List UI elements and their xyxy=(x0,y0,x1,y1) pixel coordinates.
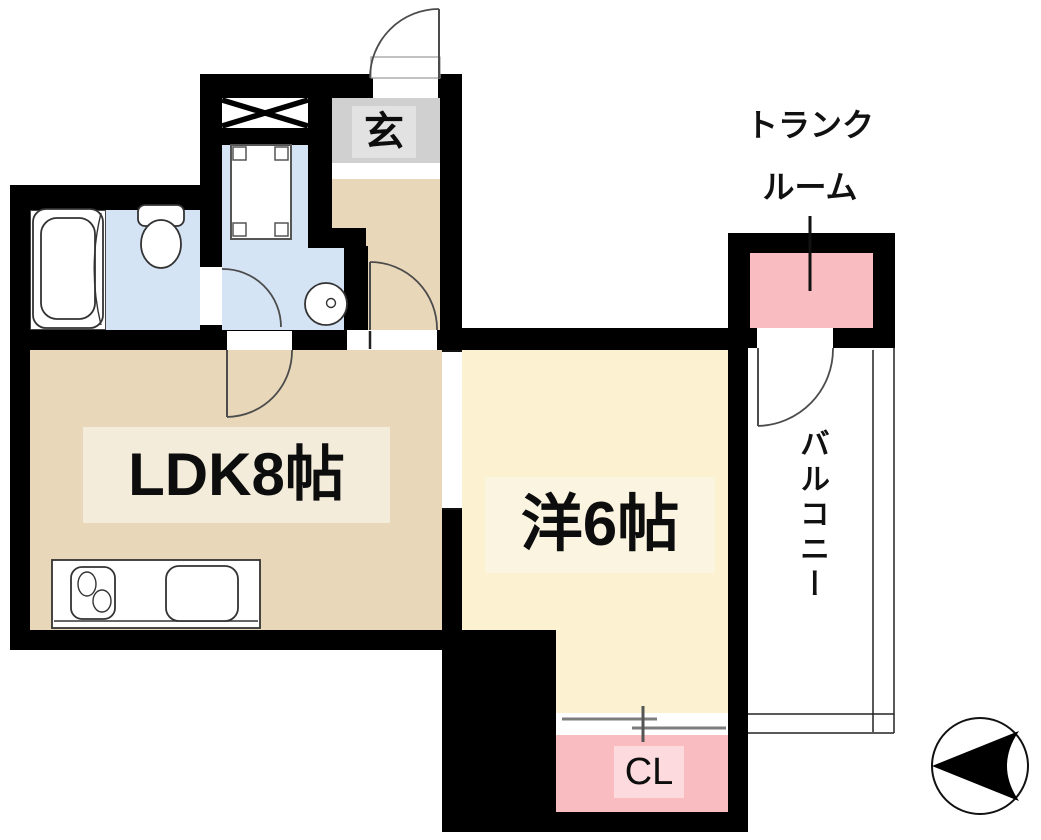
floor-plan: LDK8帖 洋6帖 玄 CL トランク ルーム バルコニー xyxy=(0,0,1041,840)
western-room-label: 洋6帖 xyxy=(485,477,715,573)
bathtub-icon xyxy=(33,209,103,328)
wash-basin-icon xyxy=(305,283,347,325)
pipe-shaft-x-icon xyxy=(222,98,308,128)
toilet-icon xyxy=(138,205,184,268)
sliding-closet-door-icon xyxy=(562,706,726,742)
entrance-door-icon xyxy=(370,9,440,78)
trunk-balcony-door-icon xyxy=(758,348,833,426)
washroom-door-arc-icon xyxy=(222,269,281,327)
trunk-room-label-line1: トランク xyxy=(746,100,874,146)
trunk-room-label: トランク ルーム xyxy=(730,100,890,210)
sink-icon xyxy=(166,566,238,621)
washroom-ldk-door-icon xyxy=(227,350,292,417)
trunk-room-label-line2: ルーム xyxy=(762,162,857,208)
passage-caps xyxy=(442,351,462,509)
kitchen-counter-icon xyxy=(52,560,260,628)
ldk-room-label: LDK8帖 xyxy=(83,427,390,523)
washing-machine-space-icon xyxy=(231,145,291,239)
entrance-label: 玄 xyxy=(352,106,416,158)
north-arrow-compass-icon xyxy=(932,718,1028,814)
closet-label: CL xyxy=(614,746,684,798)
hallway-ldk-door-icon xyxy=(370,262,437,349)
balcony-label: バルコニー xyxy=(793,428,833,638)
